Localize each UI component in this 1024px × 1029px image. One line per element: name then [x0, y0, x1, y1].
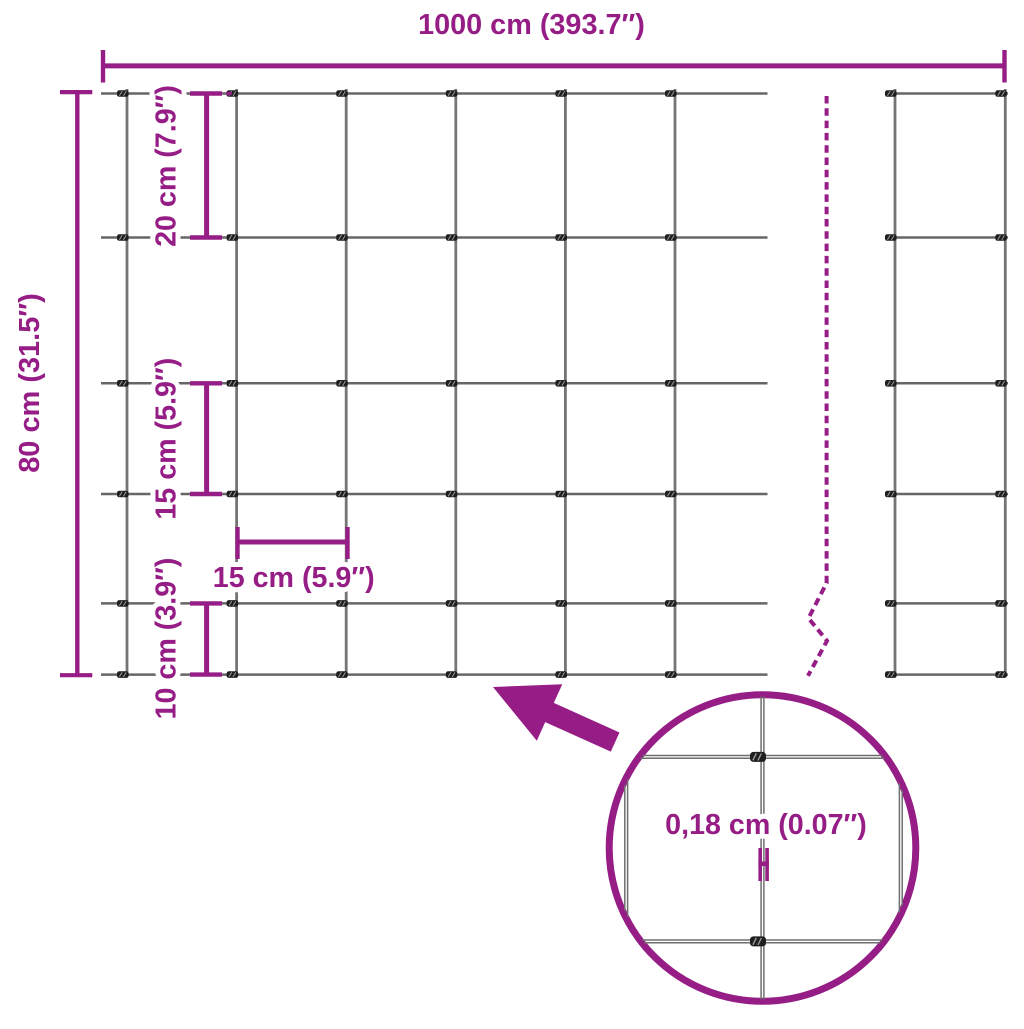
svg-text:15 cm (5.9″): 15 cm (5.9″) [213, 561, 375, 593]
svg-text:20 cm (7.9″): 20 cm (7.9″) [150, 85, 182, 247]
svg-text:10 cm (3.9″): 10 cm (3.9″) [150, 558, 182, 720]
svg-text:0,18 cm (0.07″): 0,18 cm (0.07″) [665, 808, 867, 840]
svg-text:1000 cm (393.7″): 1000 cm (393.7″) [418, 8, 645, 40]
svg-text:15 cm (5.9″): 15 cm (5.9″) [150, 358, 182, 520]
svg-text:80 cm (31.5″): 80 cm (31.5″) [13, 293, 45, 473]
